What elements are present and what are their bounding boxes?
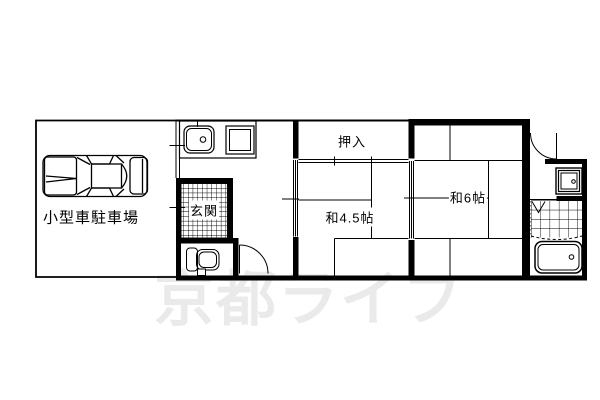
room-6-tatami-label: 和6帖 — [449, 188, 487, 207]
washbasin-icon — [556, 168, 582, 194]
room-4_5-tatami-label: 和4.5帖 — [324, 208, 375, 227]
bathtub-icon — [535, 242, 582, 274]
floorplan-image: 京都ライフ — [0, 0, 600, 400]
washroom-door-arc — [531, 133, 557, 159]
closet-label: 押入 — [338, 132, 366, 151]
floorplan-svg — [0, 0, 600, 400]
closet-fusuma-doors — [299, 157, 409, 166]
sliding-door-room-divider — [404, 161, 419, 239]
stove-icon — [226, 126, 254, 154]
kitchen-sink-icon — [184, 121, 214, 153]
toilet-icon — [187, 248, 220, 276]
unit-walls — [170, 119, 588, 281]
bath-tile-floor — [531, 201, 582, 240]
parking-label: 小型車駐車場 — [43, 207, 139, 228]
sliding-door-room45-left — [282, 160, 299, 237]
parking-outline — [36, 121, 177, 278]
car-top-view-icon — [43, 156, 148, 197]
entrance-label: 玄関 — [189, 201, 219, 220]
toilet-door-arc — [240, 245, 269, 274]
